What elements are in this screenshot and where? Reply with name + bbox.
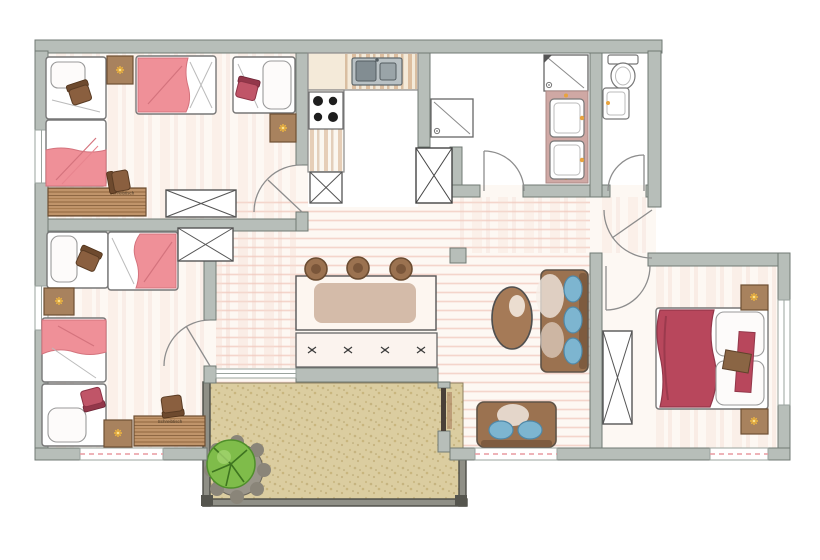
terrace <box>201 382 467 506</box>
window <box>475 448 557 460</box>
desk-chair <box>160 395 185 419</box>
window <box>710 448 768 460</box>
nightstand-with-lamp <box>104 420 132 447</box>
nightstand-with-lamp <box>741 285 768 310</box>
nightstand-with-lamp <box>107 56 133 84</box>
dining-bench <box>296 333 437 367</box>
window-terrace-front <box>216 369 296 378</box>
stool <box>347 257 369 279</box>
dining-table <box>296 276 436 330</box>
washbasin <box>550 141 584 179</box>
single-bed <box>46 120 106 186</box>
desk-label: Schreibtisch <box>158 419 183 424</box>
cushion <box>489 421 513 439</box>
wardrobe <box>178 228 233 261</box>
cushion <box>564 338 582 364</box>
sofa <box>536 270 588 372</box>
cushion <box>518 421 542 439</box>
pillar <box>450 248 466 263</box>
double-bed <box>656 308 768 409</box>
wardrobe <box>166 190 236 217</box>
wall-bedroom-divider <box>48 219 296 231</box>
wardrobe <box>603 331 632 424</box>
single-bed <box>136 56 216 114</box>
desk-chair <box>106 169 131 194</box>
nightstand-with-lamp <box>270 114 296 142</box>
desk: Schreibtisch <box>48 188 146 216</box>
window <box>80 448 163 460</box>
stove <box>309 92 343 129</box>
floor-plan-drawing: Schreibtisch <box>0 0 820 560</box>
coffee-table <box>492 287 532 349</box>
nightstand-with-lamp <box>741 409 768 434</box>
kitchen-sink <box>352 58 402 85</box>
single-bed <box>108 232 178 290</box>
desk: Schreibtisch <box>134 416 205 446</box>
potted-plant <box>204 435 271 504</box>
washbasin <box>550 99 584 137</box>
wall-east <box>648 51 661 207</box>
floor-plan-canvas: Schreibtisch <box>0 0 820 560</box>
armchair <box>477 402 556 447</box>
cushion <box>564 307 582 333</box>
shower <box>544 55 588 91</box>
stool <box>305 258 327 280</box>
base-cabinet <box>310 172 342 203</box>
stool <box>390 258 412 280</box>
nightstand-with-lamp <box>44 288 74 315</box>
washbasin <box>603 88 629 119</box>
window <box>778 300 790 405</box>
single-bed <box>42 318 106 382</box>
shower <box>431 99 473 137</box>
wall-terrace <box>296 368 438 382</box>
cushion <box>564 276 582 302</box>
wall-top <box>35 40 662 53</box>
tall-cabinet <box>416 148 452 203</box>
